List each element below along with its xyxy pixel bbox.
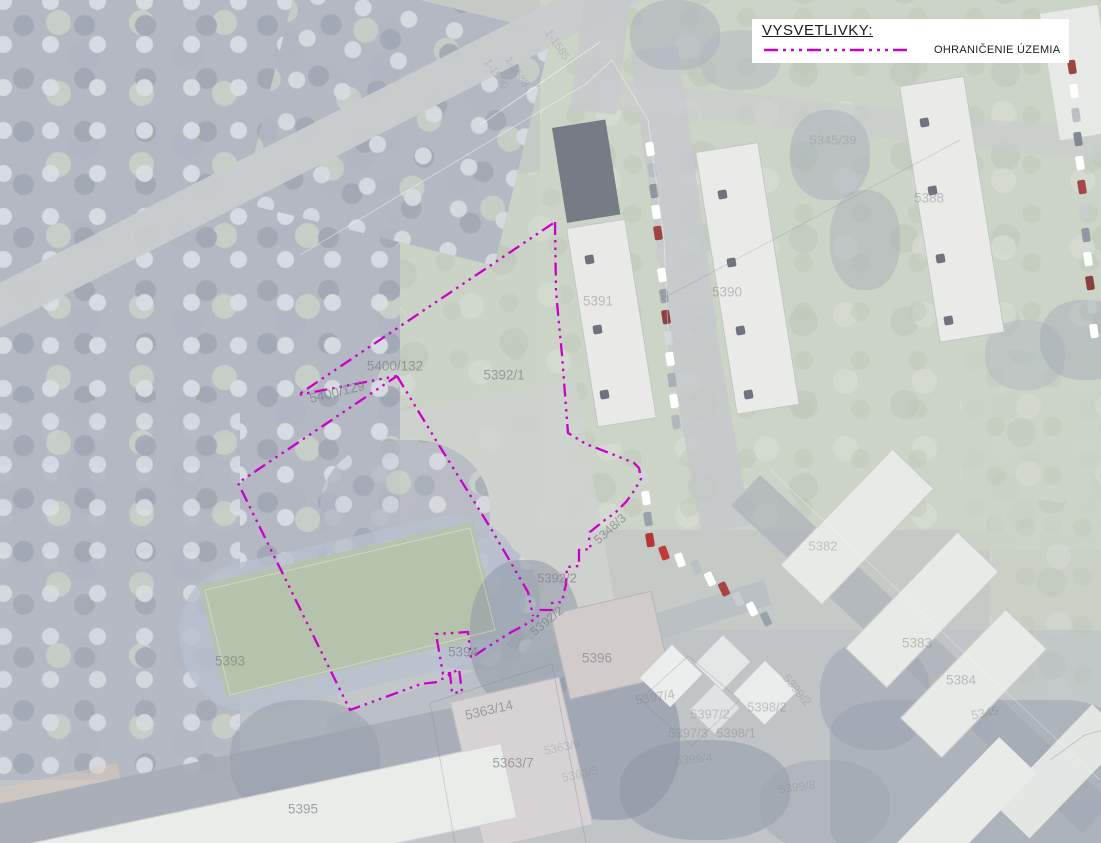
parcel-label: 5363/7	[492, 756, 533, 771]
parcel-label: 5363/9	[543, 736, 582, 757]
parcel-label: 1-1585	[542, 28, 571, 63]
parcel-label: 5397/4	[634, 686, 676, 708]
legend-title: VYSVETLIVKY:	[762, 22, 1069, 39]
parcel-label: 5363/5	[561, 763, 600, 784]
parcel-label: 5399/4	[675, 750, 713, 767]
parcel-label: 5392/2	[528, 603, 566, 638]
parcel-label: 5345/39	[810, 133, 857, 148]
parcel-label: 5388	[914, 191, 944, 206]
parcel-label: 5345	[970, 703, 1000, 722]
parcel-label: 5398/2	[747, 700, 787, 715]
parcel-label: 5392/2	[537, 571, 577, 586]
parcel-label: 5393	[215, 654, 245, 669]
parcel-label: 5392/1	[483, 368, 524, 383]
parcel-label: 5391	[583, 294, 613, 309]
parcel-label: 5382	[809, 539, 838, 554]
parcel-label: 5397/2	[690, 707, 730, 722]
legend-item-label: OHRANIČENIE ÚZEMIA	[934, 44, 1060, 56]
parcel-label: 5400/129	[308, 378, 366, 406]
legend-item: OHRANIČENIE ÚZEMIA	[762, 44, 1069, 56]
parcel-label: 5348/3	[591, 511, 629, 547]
parcel-labels-layer: 5400/1325400/1295392/15391539053885345/3…	[0, 0, 1101, 843]
parcel-label: 5394	[448, 645, 478, 660]
parcel-label: 5399/8	[778, 778, 816, 797]
parcel-label: 5363/14	[464, 697, 515, 723]
map-canvas: 5400/1325400/1295392/15391539053885345/3…	[0, 0, 1101, 843]
legend-box: VYSVETLIVKY: OHRANIČENIE ÚZEMIA	[752, 19, 1069, 63]
parcel-label: 5384	[946, 673, 976, 688]
parcel-label: 5395	[288, 802, 318, 817]
parcel-label: 5383	[902, 636, 932, 651]
parcel-label: 5390	[712, 285, 742, 300]
parcel-label: 5400/132	[367, 359, 423, 374]
parcel-label: 5398/1	[716, 726, 756, 741]
parcel-label: 5396	[582, 651, 612, 666]
parcel-label: 5397/3	[668, 726, 708, 741]
boundary-line-symbol	[762, 46, 912, 54]
